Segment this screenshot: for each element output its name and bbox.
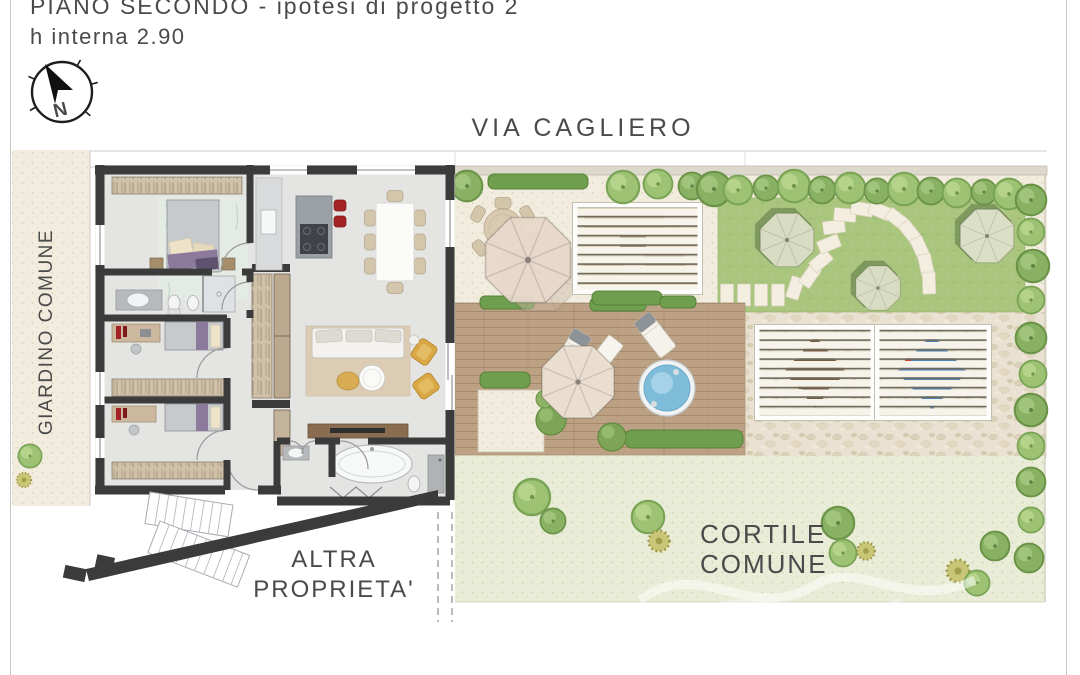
bidet (188, 296, 199, 311)
toilet (168, 295, 180, 311)
nightstand (150, 258, 163, 270)
page-title: PIANO SECONDO - ipotesi di progetto 2 (30, 0, 519, 19)
other-property-label: ALTRA PROPRIETA' (253, 546, 415, 603)
street-label: VIA CAGLIERO (471, 114, 694, 142)
dining-table (376, 203, 414, 281)
tv (330, 428, 385, 433)
floor-plan-sheet: PIANO SECONDO - ipotesi di progetto 2 h … (0, 0, 1080, 675)
common-garden-label: GIARDINO COMUNE (36, 229, 57, 435)
cabinet (428, 455, 444, 493)
wardrobe (112, 462, 224, 479)
svg-text:COMUNE: COMUNE (700, 549, 828, 579)
courtyard-label: CORTILE COMUNE (700, 519, 828, 579)
pergola-brown-sail (755, 325, 876, 421)
stool (334, 200, 346, 211)
compass-icon: N (28, 60, 97, 122)
other-property-wall (63, 490, 438, 582)
pergola-blue-sail (875, 325, 992, 421)
house-floor-plan (95, 165, 455, 501)
toilet (408, 476, 420, 492)
property-boundary-dashed (438, 512, 452, 622)
north-needle (45, 64, 73, 104)
wardrobe (112, 379, 224, 396)
page-subtitle: h interna 2.90 (30, 24, 186, 49)
wardrobe (112, 177, 242, 194)
dining-umbrella-icon (485, 217, 570, 302)
pouf (337, 372, 359, 390)
svg-text:ALTRA: ALTRA (291, 546, 377, 573)
pergola-lounge (573, 203, 703, 295)
stool (334, 216, 346, 227)
deck-terrace (455, 296, 745, 455)
shower (203, 276, 235, 312)
svg-text:CORTILE: CORTILE (700, 519, 826, 549)
hot-tub (639, 360, 695, 416)
deck-umbrella-icon (542, 346, 614, 418)
svg-text:PROPRIETA': PROPRIETA' (253, 576, 415, 603)
sidewalk (12, 151, 1047, 167)
north-label: N (51, 99, 69, 123)
deck-gravel-patch (478, 390, 544, 452)
